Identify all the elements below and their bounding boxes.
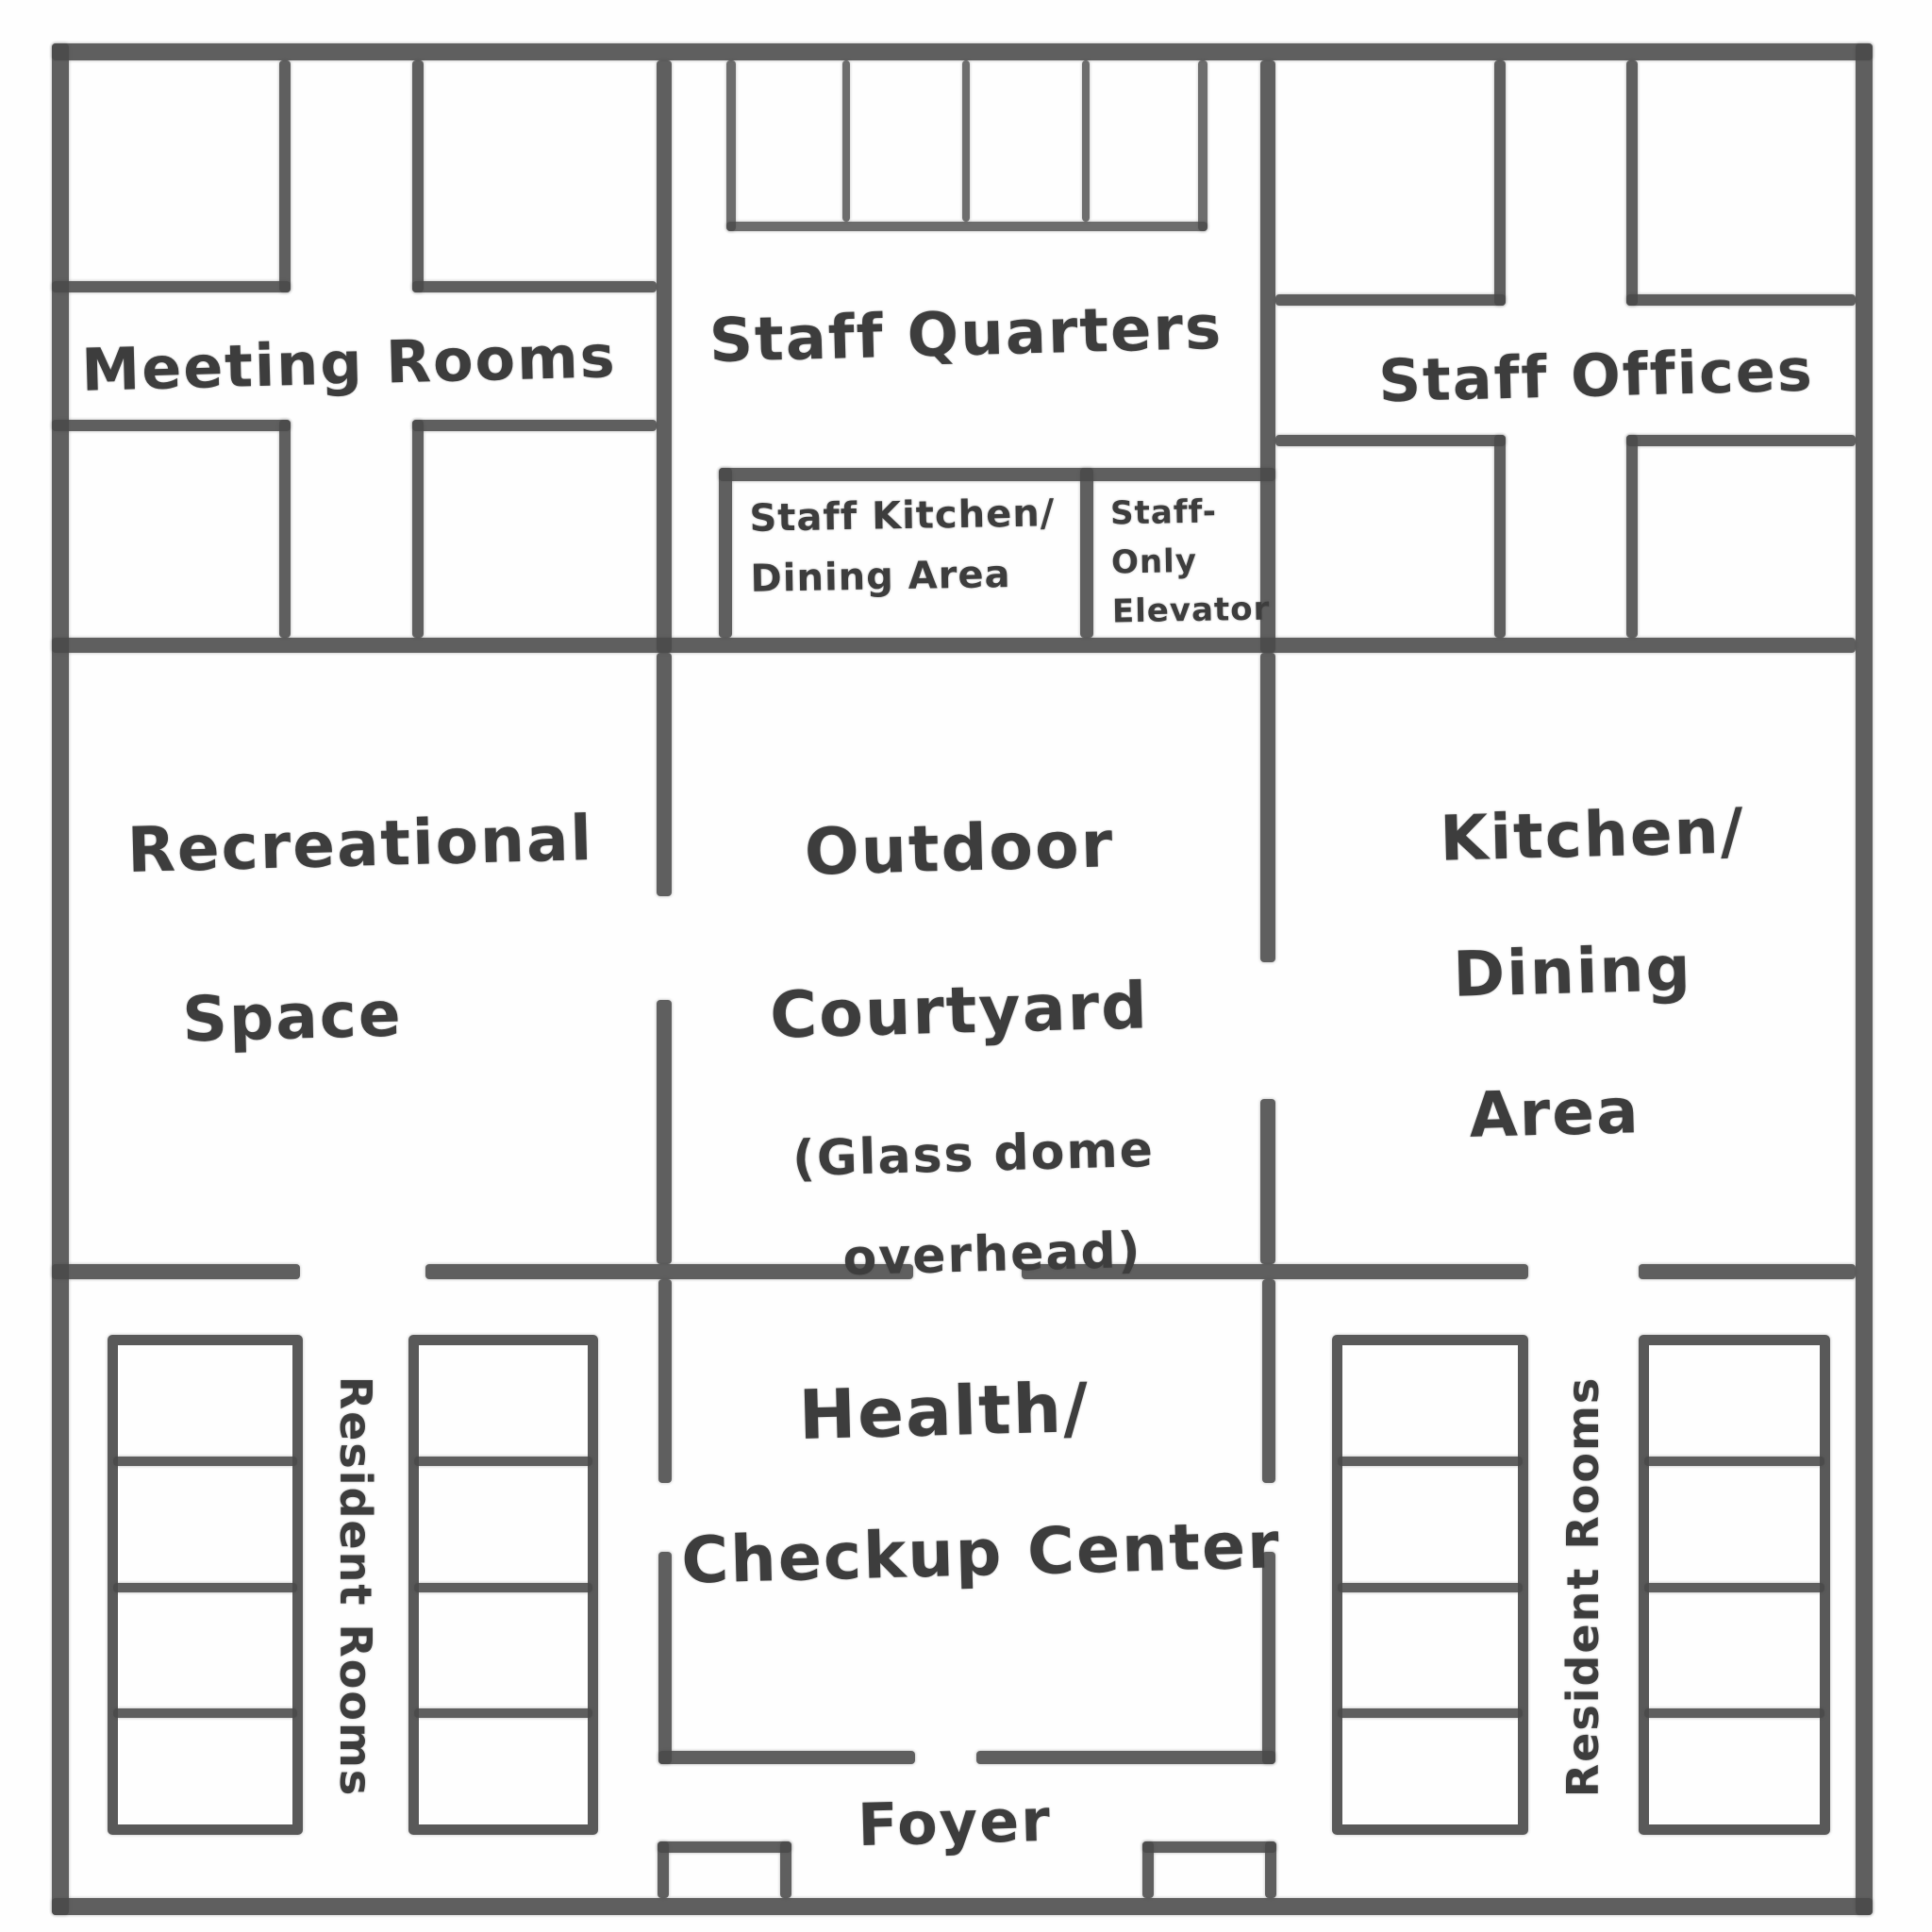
stall-row-bottom-wall: [726, 222, 1207, 231]
wall-horizontal-upper: [52, 638, 1856, 653]
meeting-room-tr-wall-h: [412, 281, 657, 292]
staff-office-tl-wall-h: [1275, 294, 1506, 306]
meeting-room-tl-wall-h: [52, 281, 291, 292]
resident-rooms-right-label: Resident Rooms: [1557, 1376, 1608, 1798]
staff-office-tl-wall-v: [1494, 60, 1506, 306]
wall-vertical-right-mid-b: [1260, 1099, 1275, 1264]
foyer-label: Foyer: [857, 1786, 1052, 1859]
staff-office-tr-wall-v: [1626, 60, 1638, 306]
resident-strip-left-outer-div1: [113, 1457, 297, 1466]
staff-office-tr-wall-h: [1626, 294, 1856, 306]
health-center-wall-right-a: [1262, 1279, 1275, 1483]
resident-strip-right-outer-div2: [1644, 1583, 1824, 1592]
meeting-room-bl-wall-h: [52, 420, 291, 431]
recreational-space-label-line2: Space: [181, 977, 403, 1056]
wall-horizontal-lower-seg1: [52, 1264, 300, 1279]
meeting-room-tl-wall-v: [279, 60, 291, 292]
stall-divider-2: [962, 60, 970, 222]
outer-wall-left: [52, 43, 69, 1915]
meeting-room-br-wall-v: [412, 420, 424, 638]
entry-vestibule-left-post1: [658, 1841, 669, 1898]
wall-horizontal-lower-seg4: [1639, 1264, 1856, 1279]
staff-office-br-wall-h: [1626, 435, 1856, 446]
staff-kitchen-label: Staff Kitchen/ Dining Area: [749, 483, 1057, 609]
kitchen-dining-label-line2: Dining: [1452, 932, 1692, 1011]
resident-strip-left-inner-div2: [414, 1583, 592, 1592]
stall-divider-3: [1082, 60, 1090, 222]
courtyard-label-line1: Outdoor: [804, 808, 1115, 891]
health-center-label-line1: Health/: [798, 1368, 1091, 1455]
stall-row-right-wall: [1198, 60, 1207, 231]
courtyard-label-line3: (Glass dome: [791, 1122, 1155, 1188]
staff-elevator-label: Staff- Only Elevator: [1110, 487, 1271, 637]
outer-wall-right: [1856, 43, 1873, 1915]
wall-vertical-left-top: [657, 60, 672, 653]
wall-vertical-left-mid-a: [657, 653, 672, 896]
resident-strip-right-inner-div2: [1338, 1583, 1523, 1592]
entry-vestibule-left-top: [658, 1841, 791, 1853]
entry-vestibule-right-post2: [1265, 1841, 1276, 1898]
resident-strip-right-outer-div3: [1644, 1708, 1824, 1718]
resident-strip-left-outer-div2: [113, 1583, 297, 1592]
resident-strip-right-outer-div1: [1644, 1457, 1824, 1466]
resident-rooms-left-label: Resident Rooms: [330, 1376, 381, 1798]
outer-wall-top: [52, 43, 1873, 60]
entry-vestibule-left-post2: [780, 1841, 791, 1898]
entry-vestibule-right-top: [1142, 1841, 1276, 1853]
staff-office-bl-wall-h: [1275, 435, 1506, 446]
meeting-room-bl-wall-v: [279, 420, 291, 638]
stall-divider-1: [842, 60, 850, 222]
health-center-wall-left-a: [658, 1279, 672, 1483]
health-center-label-line2: Checkup Center: [680, 1508, 1281, 1599]
staff-kitchen-wall-top: [719, 468, 1275, 481]
health-center-wall-bottom-left: [658, 1751, 915, 1764]
resident-strip-right-inner-div3: [1338, 1708, 1523, 1718]
kitchen-dining-label-line1: Kitchen/: [1439, 794, 1745, 874]
resident-strip-left-outer-div3: [113, 1708, 297, 1718]
wall-vertical-left-mid-b: [657, 1000, 672, 1264]
courtyard-label-line2: Courtyard: [769, 969, 1149, 1053]
resident-strip-left-inner-div3: [414, 1708, 592, 1718]
meeting-room-br-wall-h: [412, 420, 657, 431]
health-center-wall-left-b: [658, 1552, 672, 1764]
staff-offices-label: Staff Offices: [1377, 335, 1814, 415]
recreational-space-label-line1: Recreational: [126, 802, 594, 887]
resident-strip-right-inner-div1: [1338, 1457, 1523, 1466]
floor-plan: Meeting Rooms Staff Quarters Staff Offic…: [0, 0, 1932, 1932]
staff-office-bl-wall-v: [1494, 435, 1506, 638]
staff-quarters-label: Staff Quarters: [708, 293, 1224, 376]
kitchen-dining-label-line3: Area: [1469, 1074, 1641, 1152]
staff-kitchen-wall-left: [719, 468, 732, 638]
wall-horizontal-lower-seg2: [425, 1264, 913, 1279]
courtyard-label-line4: overhead): [842, 1223, 1142, 1287]
entry-vestibule-right-post1: [1142, 1841, 1154, 1898]
meeting-room-tr-wall-v: [412, 60, 424, 292]
meeting-rooms-label: Meeting Rooms: [81, 322, 618, 405]
health-center-wall-bottom-right: [976, 1751, 1275, 1764]
wall-vertical-right-mid-a: [1260, 653, 1275, 962]
staff-kitchen-elevator-divider: [1080, 468, 1093, 638]
stall-row-left-wall: [726, 60, 736, 231]
resident-strip-left-inner-div1: [414, 1457, 592, 1466]
staff-office-br-wall-v: [1626, 435, 1638, 638]
health-center-wall-right-b: [1262, 1552, 1275, 1764]
outer-wall-bottom: [52, 1898, 1873, 1915]
